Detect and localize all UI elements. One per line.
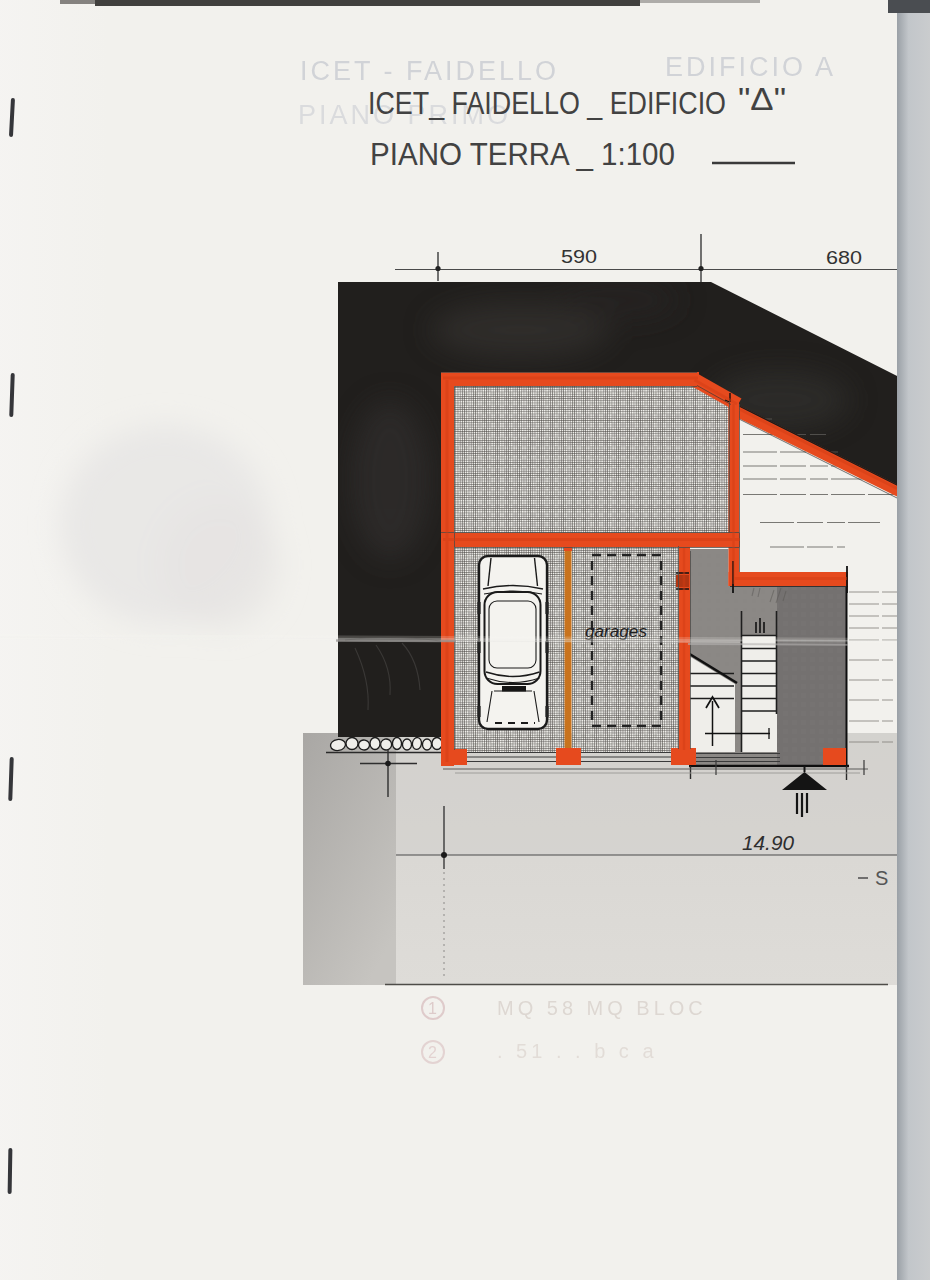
svg-text:14.90: 14.90 [742, 832, 794, 854]
svg-text:MQ 58 MQ BLOC: MQ 58 MQ BLOC [497, 997, 707, 1019]
svg-text:S: S [875, 867, 888, 889]
svg-text:. 51 . . b: . 51 . . b c a [497, 1040, 658, 1062]
svg-text:590: 590 [561, 246, 597, 267]
svg-text:ICET - FAIDELLO: ICET - FAIDELLO [300, 56, 559, 86]
svg-text:2: 2 [428, 1044, 437, 1061]
svg-text:ICET_ FAIDELLO _ EDIFICIO: ICET_ FAIDELLO _ EDIFICIO [368, 86, 726, 121]
svg-text:"Δ": "Δ" [738, 82, 786, 117]
svg-text:EDIFICIO A: EDIFICIO A [665, 52, 836, 82]
svg-text:680: 680 [826, 247, 862, 268]
svg-text:1: 1 [428, 1000, 437, 1017]
svg-text:PIANO TERRA _ 1:100: PIANO TERRA _ 1:100 [370, 137, 675, 172]
